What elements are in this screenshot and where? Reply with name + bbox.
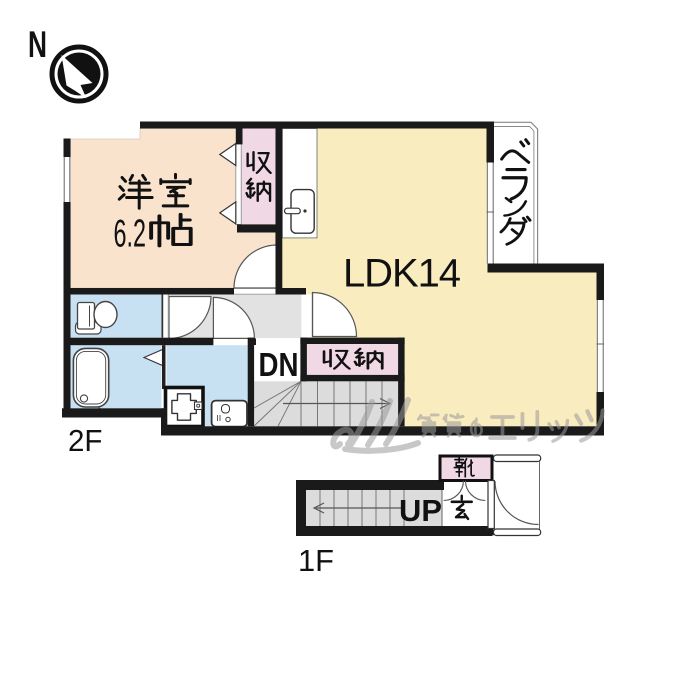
svg-text:UP: UP [399, 493, 442, 528]
svg-text:LDK14: LDK14 [343, 252, 461, 296]
svg-text:N: N [28, 24, 47, 65]
svg-text:1F: 1F [298, 543, 334, 578]
svg-text:6.2: 6.2 [114, 213, 147, 256]
svg-text:DN: DN [259, 346, 299, 383]
svg-text:2F: 2F [68, 423, 103, 458]
